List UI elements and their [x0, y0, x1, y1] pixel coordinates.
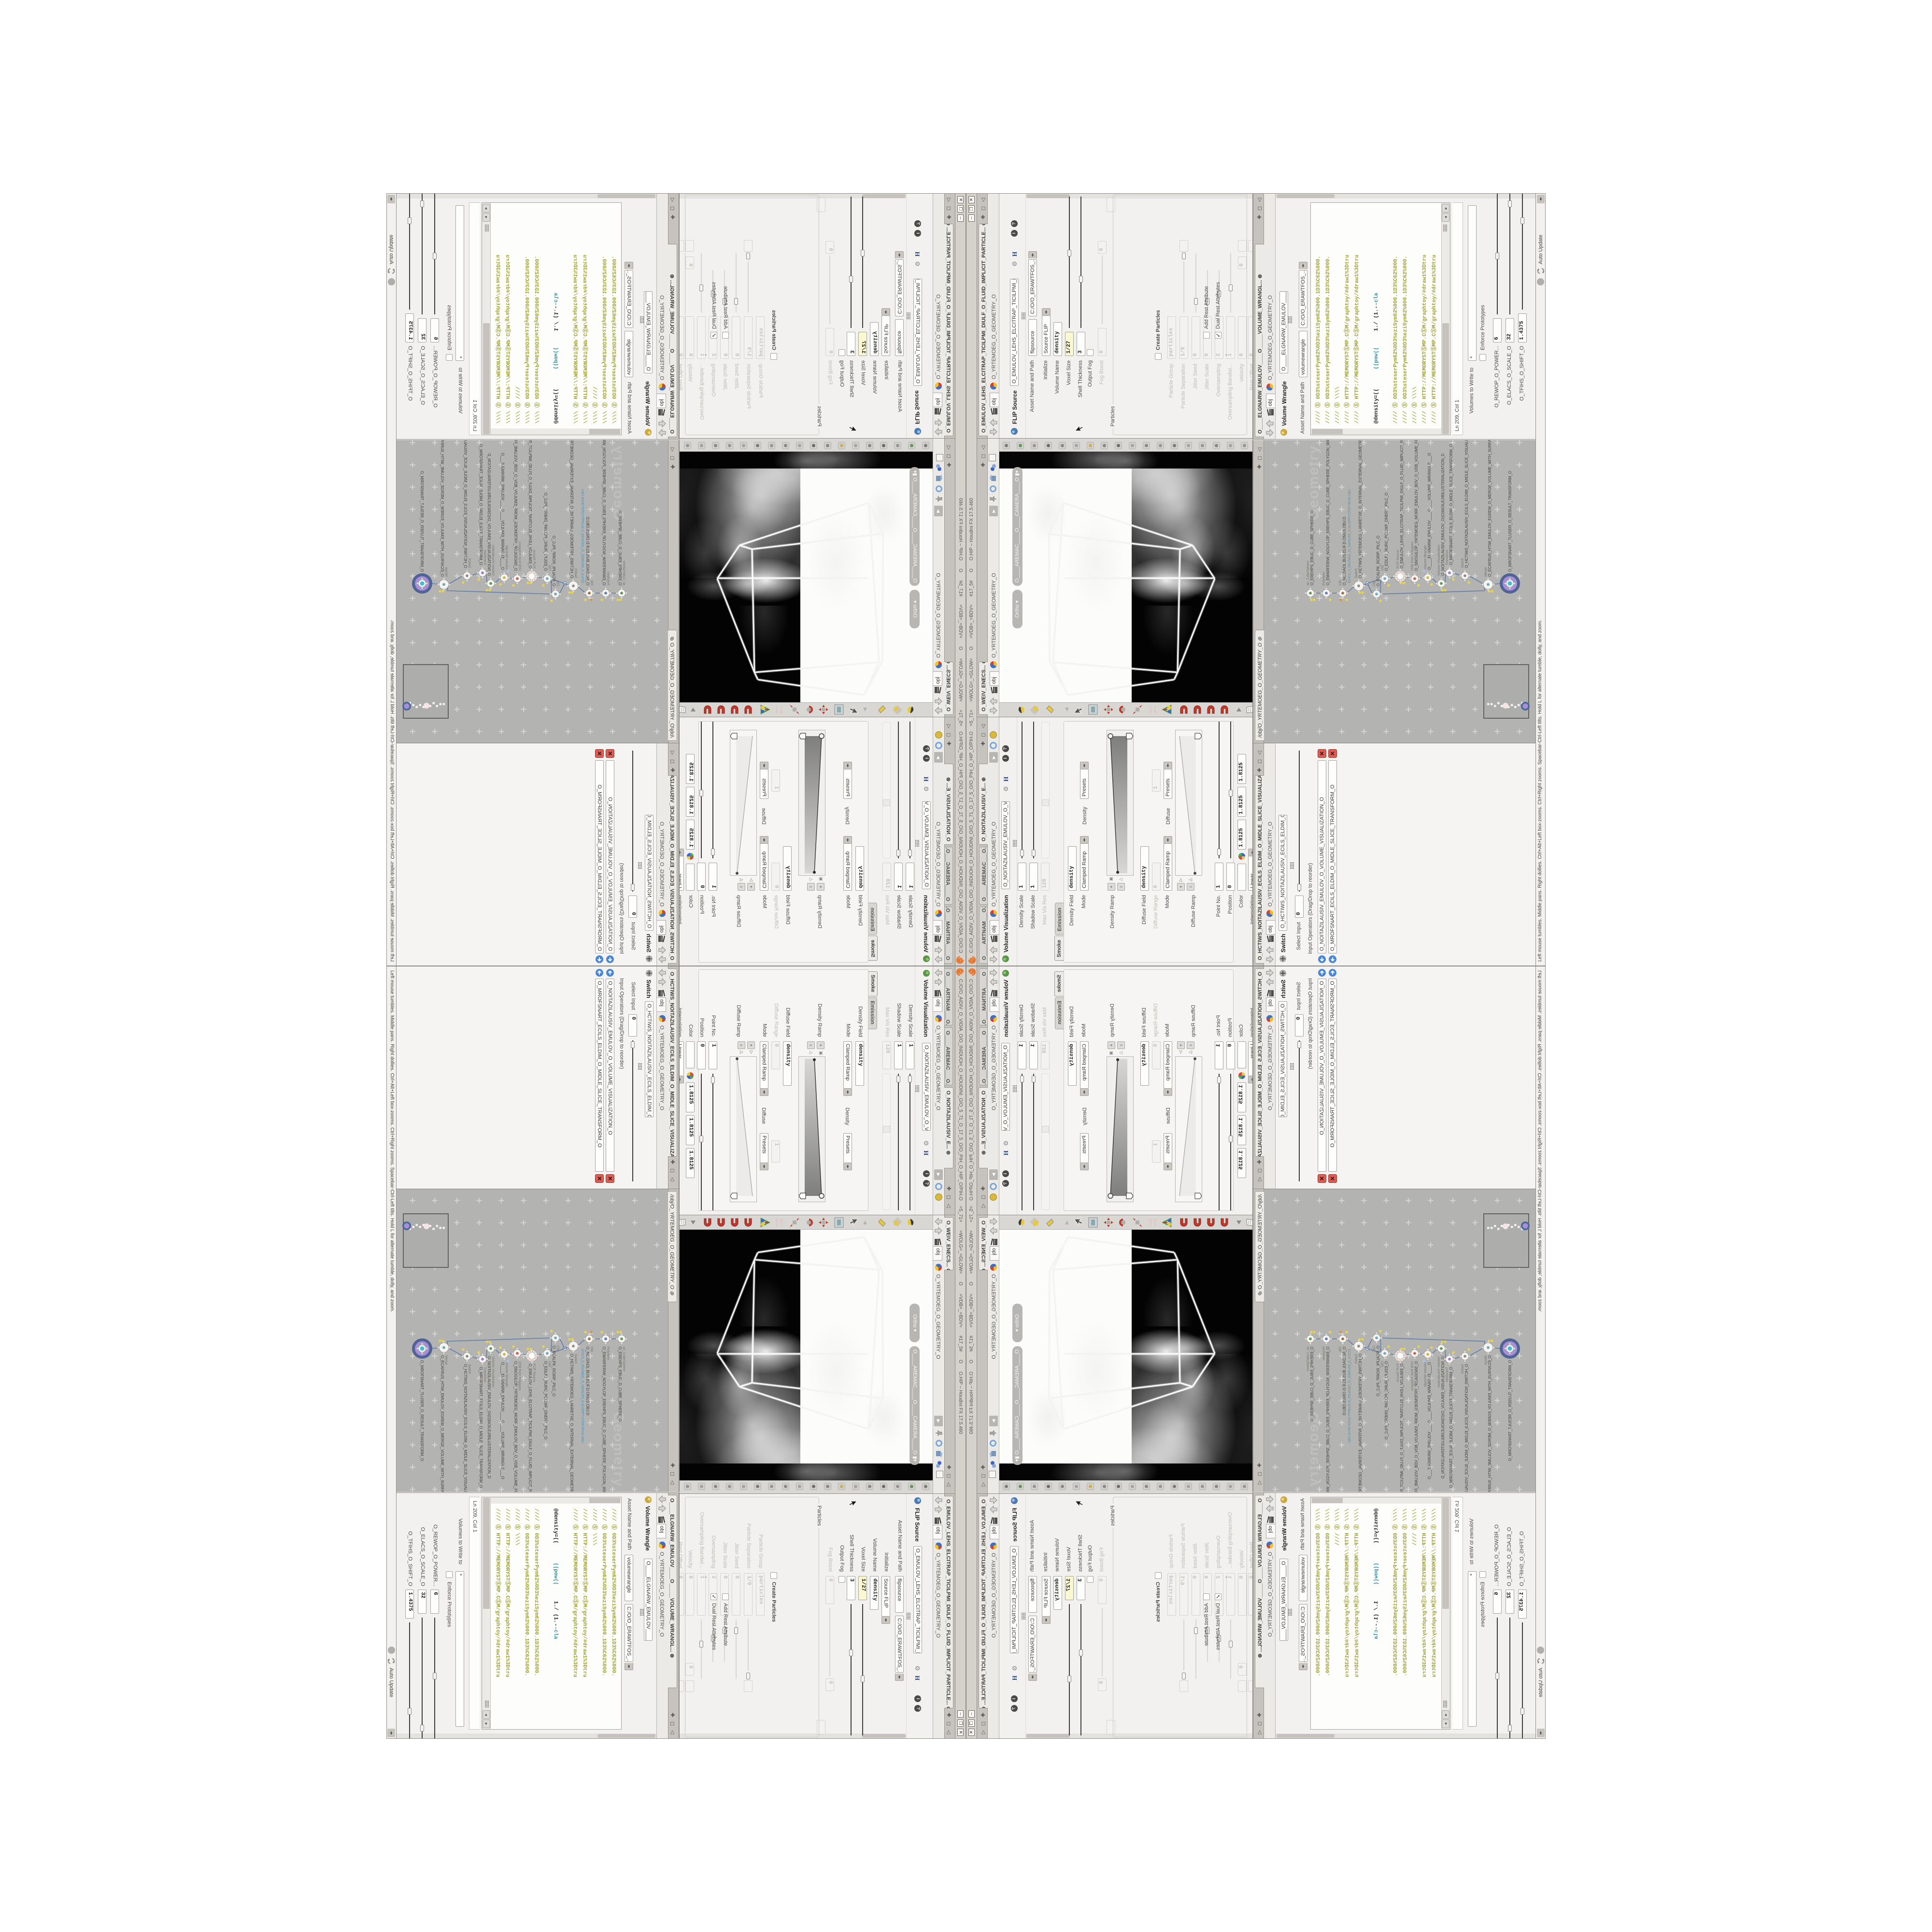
svg-text:O_EMULOV_LEHS_ELCITRAP_TICILPM: O_EMULOV_LEHS_ELCITRAP_TICILPMI_DIULF_O_…: [1400, 1364, 1404, 1492]
svg-text:ECILS_0_5SUNEG_O_GENUS5_0.SLOP: ECILS_0_5SUNEG_O_GENUS5_0.SLOPPY.STEP.3D…: [581, 1349, 584, 1443]
svg-text:O_MROFSNART_ECILS_ELDIM_O_MIDL: O_MROFSNART_ECILS_ELDIM_O_MIDLE_SLICE_TR…: [479, 1367, 483, 1488]
svg-text:PolyWire: PolyWire: [1322, 572, 1326, 585]
svg-text:Volume Visualization: Volume Visualization: [491, 544, 495, 576]
svg-text:O_EMARFERIW_NOGYLOP_EREHPS_EBU: O_EMARFERIW_NOGYLOP_EREHPS_EBUC_D_CUBE_S…: [602, 440, 606, 585]
svg-text:Switch: Switch: [1461, 558, 1464, 568]
svg-text:Geometry: Geometry: [611, 1412, 626, 1487]
svg-text:O_EDLPJ_RURC_PCGWF_DNERT_PILC_: O_EDLPJ_RURC_PCGWF_DNERT_PILC_O: [1384, 493, 1389, 571]
svg-text:Merge: Merge: [444, 567, 448, 577]
svg-text:PolyWire: PolyWire: [606, 572, 610, 585]
svg-text:FLIP Source: FLIP Source: [532, 550, 536, 568]
svg-text:an_CubeSphere: an_CubeSphere: [622, 561, 625, 585]
svg-text:Switch: Switch: [1355, 568, 1358, 578]
svg-text:File: File: [1339, 580, 1342, 585]
svg-text:Switch: Switch: [1355, 1354, 1358, 1364]
svg-text:File: File: [590, 1347, 593, 1352]
svg-text:O_EMARFERIW_NOGYLOP_EREHPS_EBU: O_EMARFERIW_NOGYLOP_EREHPS_EBUC_D_CUBE_S…: [1326, 1347, 1330, 1492]
svg-text:Clip: Clip: [1381, 1361, 1384, 1367]
svg-text:O_EMULOV_LEHS_ELCITRAP_TICILPM: O_EMULOV_LEHS_ELCITRAP_TICILPMI_DIULF_O_…: [1400, 440, 1404, 568]
svg-text:O_HCTIWS_YRTEMOEG_LANRETXE_O_I: O_HCTIWS_YRTEMOEG_LANRETXE_O_INTERNAL_EX…: [1358, 440, 1363, 578]
svg-text:FLIP Source: FLIP Source: [532, 1364, 536, 1382]
svg-text:Clip: Clip: [1373, 581, 1376, 586]
svg-text:O_EDLPJ_RURC_PCGWF_DNERT_PILC_: O_EDLPJ_RURC_PCGWF_DNERT_PILC_O: [1384, 1361, 1389, 1439]
svg-text:VDB from Polygons: VDB from Polygons: [1411, 1361, 1414, 1391]
svg-text:O_EMARFERIW_NOGYLOP_EREHPS_EBU: O_EMARFERIW_NOGYLOP_EREHPS_EBUC_D_CUBE_S…: [602, 1347, 606, 1492]
svg-text:O____ELGNARW_EMULOV____O____VO: O____ELGNARW_EMULOV____O____VOLUME_WRANG…: [500, 1362, 505, 1479]
svg-text:O____ELGNARW_EMULOV____O____VO: O____ELGNARW_EMULOV____O____VOLUME_WRANG…: [1427, 453, 1432, 570]
svg-text:Volume Visualization: Volume Visualization: [491, 1356, 495, 1388]
svg-text:Clip: Clip: [1381, 565, 1384, 571]
svg-text:O_MROFSNART_TLUSER_O_RESULT_TR: O_MROFSNART_TLUSER_O_RESULT_TRANSFORM_O: [420, 1360, 424, 1461]
svg-text:PolyWire: PolyWire: [1322, 1347, 1326, 1360]
svg-text:O_NC.DAOL.BUS.ELIF.D.ONUS.OBJ.: O_NC.DAOL.BUS.ELIF.D.ONUS.OBJ.D: [585, 517, 590, 585]
svg-text:Clip: Clip: [556, 581, 559, 586]
svg-text:O_MROFSNART_ECILS_ELDIM_O_MIDL: O_MROFSNART_ECILS_ELDIM_O_MIDLE_SLICE_TR…: [1449, 1367, 1453, 1488]
svg-text:O_ECAFRUS_HTIW_EMULOV_EGREM_O_: O_ECAFRUS_HTIW_EMULOV_EGREM_O_MERGE_VOLU…: [440, 1355, 444, 1492]
svg-text:O_EREHPS_EBUC_D_CUBE_SPHERE_O: O_EREHPS_EBUC_D_CUBE_SPHERE_O: [1310, 1347, 1314, 1421]
svg-text:VDB from Polygons: VDB from Polygons: [1411, 541, 1414, 571]
svg-text:VDB from Polygons: VDB from Polygons: [518, 541, 521, 571]
svg-text:O_NOITAZILAUSIV_EMULOV_O/(O)NO: O_NOITAZILAUSIV_EMULOV_O/(O)NOILEJ/BILUS…: [487, 454, 491, 576]
svg-text:O_MROFSNART_TLUSER_O_RESULT_TR: O_MROFSNART_TLUSER_O_RESULT_TRANSFORM_O: [1508, 1360, 1512, 1461]
svg-text:O_NOITAZILAUSIV_EMULOV_O/(O)NO: O_NOITAZILAUSIV_EMULOV_O/(O)NOILEJ/BILUS…: [1441, 454, 1445, 576]
svg-text:FLIP Source: FLIP Source: [1396, 550, 1400, 568]
svg-text:O_EDLPJ_RURC_PCGWF_DNERT_PILC_: O_EDLPJ_RURC_PCGWF_DNERT_PILC_O: [543, 493, 548, 571]
svg-text:O_HCTIWS_NOITAZILAUSIV_ECILS_E: O_HCTIWS_NOITAZILAUSIV_ECILS_ELDIM_O_MID…: [463, 1364, 468, 1492]
svg-text:O____ELGNARW_EMULOV____O____VO: O____ELGNARW_EMULOV____O____VOLUME_WRANG…: [500, 453, 505, 570]
svg-text:Volume Visualization: Volume Visualization: [1437, 1356, 1441, 1388]
svg-text:O_ECAFRUS_HTIW_EMULOV_EGREM_O_: O_ECAFRUS_HTIW_EMULOV_EGREM_O_MERGE_VOLU…: [1488, 1355, 1492, 1492]
svg-text:O_EMULOV_LEHS_ELCITRAP_TICILPM: O_EMULOV_LEHS_ELCITRAP_TICILPMI_DIULF_O_…: [528, 440, 532, 568]
svg-text:O_EMARFERIW_NOGYLOP_EREHPS_EBU: O_EMARFERIW_NOGYLOP_EREHPS_EBUC_D_CUBE_S…: [1326, 440, 1330, 585]
svg-text:O_SNOGILOP_YRTEMOEG_MORF_EMULO: O_SNOGILOP_YRTEMOEG_MORF_EMULOV_BDV_O_VD…: [513, 1361, 518, 1492]
svg-text:an_CubeSphere: an_CubeSphere: [1307, 1347, 1310, 1371]
svg-text:Switch: Switch: [574, 1354, 577, 1364]
svg-text:O_NOITAZILAUSIV_EMULOV_O/(O)NO: O_NOITAZILAUSIV_EMULOV_O/(O)NOILEJ/BILUS…: [487, 1356, 491, 1478]
svg-text:FLIP Source: FLIP Source: [1396, 1364, 1400, 1382]
svg-text:O____ELGNARW_EMULOV____O____VO: O____ELGNARW_EMULOV____O____VOLUME_WRANG…: [1427, 1362, 1432, 1479]
svg-text:Merge: Merge: [444, 1355, 448, 1365]
svg-text:O_MROFSNART_ECILS_ELDIM_O_MIDL: O_MROFSNART_ECILS_ELDIM_O_MIDLE_SLICE_TR…: [1449, 444, 1453, 565]
svg-text:an_CubeSphere: an_CubeSphere: [1307, 561, 1310, 585]
svg-text:O_EMULOV_LEHS_ELCITRAP_TICILPM: O_EMULOV_LEHS_ELCITRAP_TICILPMI_DIULF_O_…: [528, 1364, 532, 1492]
svg-text:Merge: Merge: [1484, 567, 1488, 577]
svg-text:Volume Wrangle: Volume Wrangle: [1424, 545, 1427, 570]
svg-text:Geometry: Geometry: [611, 445, 626, 520]
svg-text:O_EDLPJ_RURC_PCGWF_DNERT_PILC_: O_EDLPJ_RURC_PCGWF_DNERT_PILC_O: [543, 1361, 548, 1439]
svg-text:O_NOITAZILAUSIV_EMULOV_O/(O)NO: O_NOITAZILAUSIV_EMULOV_O/(O)NOILEJ/BILUS…: [1441, 1356, 1445, 1478]
svg-text:ECILS_0_5SUNEG_O_GENUS5_0.SLOP: ECILS_0_5SUNEG_O_GENUS5_0.SLOPPY.STEP.3D…: [1348, 489, 1351, 583]
svg-text:O_HCTIWS_YRTEMOEG_LANRETXE_O_I: O_HCTIWS_YRTEMOEG_LANRETXE_O_INTERNAL_EX…: [569, 1354, 574, 1492]
svg-text:O_EREHPS_EBUC_D_CUBE_SPHERE_O: O_EREHPS_EBUC_D_CUBE_SPHERE_O: [618, 1347, 622, 1421]
svg-text:O_EREHPS_EBUC_D_CUBE_SPHERE_O: O_EREHPS_EBUC_D_CUBE_SPHERE_O: [1310, 511, 1314, 585]
svg-text:Switch: Switch: [468, 1364, 471, 1374]
svg-text:O_MROFSNART_TLUSER_O_RESULT_TR: O_MROFSNART_TLUSER_O_RESULT_TRANSFORM_O: [420, 471, 424, 572]
svg-text:File: File: [1339, 1347, 1342, 1352]
svg-text:Clip: Clip: [1373, 1346, 1376, 1351]
svg-text:Transform: Transform: [483, 1367, 486, 1382]
svg-text:Transform: Transform: [1446, 1367, 1449, 1382]
svg-text:O_SNOGILOP_YRTEMOEG_MORF_EMULO: O_SNOGILOP_YRTEMOEG_MORF_EMULOV_BDV_O_VD…: [513, 440, 518, 571]
svg-text:O_HCTIWS_YRTEMOEG_LANRETXE_O_I: O_HCTIWS_YRTEMOEG_LANRETXE_O_INTERNAL_EX…: [1358, 1354, 1363, 1492]
svg-text:O_SNOGILOP_YRTEMOEG_MORF_EMULO: O_SNOGILOP_YRTEMOEG_MORF_EMULOV_BDV_O_VD…: [1414, 1361, 1419, 1492]
svg-text:O_HCTIWS_NOITAZILAUSIV_ECILS_E: O_HCTIWS_NOITAZILAUSIV_ECILS_ELDIM_O_MID…: [1464, 440, 1469, 568]
svg-text:O_MROFSNART_TLUSER_O_RESULT_TR: O_MROFSNART_TLUSER_O_RESULT_TRANSFORM_O: [1508, 471, 1512, 572]
svg-text:O_HCTIWS_NOITAZILAUSIV_ECILS_E: O_HCTIWS_NOITAZILAUSIV_ECILS_ELDIM_O_MID…: [1464, 1364, 1469, 1492]
svg-text:Volume Wrangle: Volume Wrangle: [505, 1362, 508, 1387]
svg-text:Transform: Transform: [1446, 550, 1449, 565]
svg-text:ECILS_0_5SUNEG_O_GENUS5_0.SLOP: ECILS_0_5SUNEG_O_GENUS5_0.SLOPPY.STEP.3D…: [581, 489, 584, 583]
svg-text:O_SNOGILOP_YRTEMOEG_MORF_EMULO: O_SNOGILOP_YRTEMOEG_MORF_EMULOV_BDV_O_VD…: [1414, 440, 1419, 571]
svg-text:O_HCTIWS_YRTEMOEG_LANRETXE_O_I: O_HCTIWS_YRTEMOEG_LANRETXE_O_INTERNAL_EX…: [569, 440, 574, 578]
svg-text:O_HCTIWS_NOITAZILAUSIV_ECILS_E: O_HCTIWS_NOITAZILAUSIV_ECILS_ELDIM_O_MID…: [463, 440, 468, 568]
svg-text:O_EREHPS_EBUC_D_CUBE_SPHERE_O: O_EREHPS_EBUC_D_CUBE_SPHERE_O: [618, 511, 622, 585]
svg-text:ECILS_0_5SUNEG_O_GENUS5_0.SLOP: ECILS_0_5SUNEG_O_GENUS5_0.SLOPPY.STEP.3D…: [1348, 1349, 1351, 1443]
svg-text:O_NC.DAOL.BUS.ELIF.D.ONUS.OBJ.: O_NC.DAOL.BUS.ELIF.D.ONUS.OBJ.D: [1342, 1347, 1347, 1415]
svg-text:File: File: [590, 580, 593, 585]
svg-text:Transform: Transform: [483, 550, 486, 565]
svg-text:PolyWire: PolyWire: [606, 1347, 610, 1360]
svg-text:Clip: Clip: [548, 565, 551, 571]
svg-text:O_ECAFRUS_HTIW_EMULOV_EGREM_O_: O_ECAFRUS_HTIW_EMULOV_EGREM_O_MERGE_VOLU…: [1488, 440, 1492, 577]
svg-text:an_CubeSphere: an_CubeSphere: [622, 1347, 625, 1371]
svg-text:O_MROFSNART_ECILS_ELDIM_O_MIDL: O_MROFSNART_ECILS_ELDIM_O_MIDLE_SLICE_TR…: [479, 444, 483, 565]
svg-text:Geometry: Geometry: [1306, 1412, 1321, 1487]
svg-text:Merge: Merge: [1484, 1355, 1488, 1365]
svg-text:O_ECAFRUS_HTIW_EMULOV_EGREM_O_: O_ECAFRUS_HTIW_EMULOV_EGREM_O_MERGE_VOLU…: [440, 440, 444, 577]
svg-text:Volume Visualization: Volume Visualization: [1437, 544, 1441, 576]
svg-text:VDB from Polygons: VDB from Polygons: [518, 1361, 521, 1391]
svg-text:Switch: Switch: [574, 568, 577, 578]
svg-text:Clip: Clip: [556, 1346, 559, 1351]
svg-text:Volume Wrangle: Volume Wrangle: [505, 545, 508, 570]
svg-text:Volume Wrangle: Volume Wrangle: [1424, 1362, 1427, 1387]
svg-text:Switch: Switch: [1461, 1364, 1464, 1374]
svg-text:Clip: Clip: [548, 1361, 551, 1367]
svg-text:O_NC.DAOL.BUS.ELIF.D.ONUS.OBJ.: O_NC.DAOL.BUS.ELIF.D.ONUS.OBJ.D: [585, 1347, 590, 1415]
svg-text:O_NC.DAOL.BUS.ELIF.D.ONUS.OBJ.: O_NC.DAOL.BUS.ELIF.D.ONUS.OBJ.D: [1342, 517, 1347, 585]
svg-text:Geometry: Geometry: [1306, 445, 1321, 520]
svg-text:Switch: Switch: [468, 558, 471, 568]
